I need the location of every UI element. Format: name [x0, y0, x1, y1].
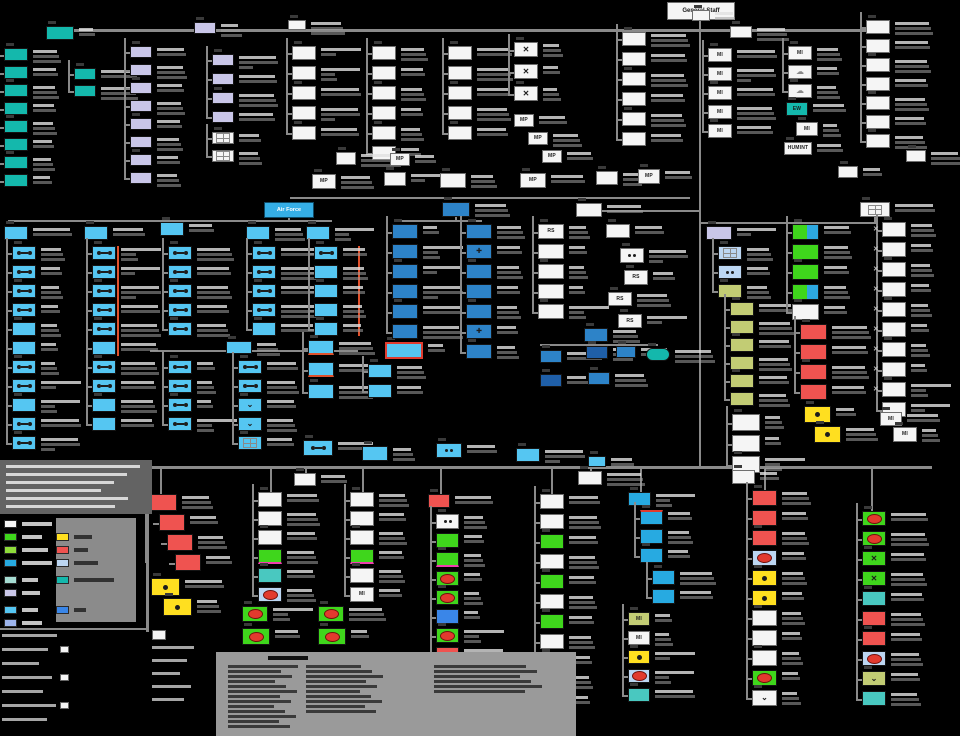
unit-label-line	[759, 340, 789, 343]
unit-label-line	[651, 79, 686, 82]
fixed-wing-icon	[97, 289, 112, 293]
unit-label-line	[185, 585, 224, 588]
echelon-tick	[308, 221, 316, 224]
unit-box	[882, 362, 906, 377]
unit-box	[540, 494, 564, 509]
echelon-tick	[868, 15, 876, 18]
fixed-wing-icon	[17, 251, 32, 255]
echelon-tick	[132, 77, 140, 80]
unit-label-line	[182, 496, 209, 499]
unit-label-line	[41, 438, 78, 441]
unit-label-line	[737, 112, 774, 115]
unit-box	[622, 132, 646, 146]
armor-oval-icon	[325, 632, 340, 642]
echelon-tick	[816, 421, 824, 424]
echelon-tick	[754, 645, 762, 648]
unit-label-line	[747, 272, 770, 275]
fixed-wing-icon	[319, 251, 334, 255]
legend-label-line	[22, 522, 52, 526]
unit-label-line	[415, 155, 434, 158]
unit-label-line	[343, 286, 363, 289]
unit-label-line	[275, 228, 301, 231]
echelon-tick	[170, 317, 178, 320]
unit-label-line	[895, 79, 926, 82]
unit-box	[540, 374, 562, 387]
unit-label-line	[817, 91, 838, 94]
unit-label-line	[41, 248, 61, 251]
unit-label-line	[680, 577, 714, 580]
echelon-tick	[786, 137, 794, 140]
unit-label-line	[911, 314, 932, 317]
unit-label-line	[737, 50, 775, 53]
cluster-spine-line	[124, 38, 126, 178]
unit-box	[308, 362, 334, 377]
footnote-text-line	[228, 690, 297, 693]
fixed-wing-icon	[97, 384, 112, 388]
unit-box	[862, 691, 886, 706]
unit-label-line	[782, 592, 802, 595]
unit-label-line	[351, 635, 369, 638]
unit-label-line	[41, 343, 56, 346]
unit-box	[538, 304, 564, 319]
unit-label-line	[379, 556, 404, 559]
unit-label-line	[782, 582, 807, 585]
echelon-tick	[374, 121, 382, 124]
unit-label-line	[895, 204, 933, 207]
unit-label-line	[33, 163, 53, 166]
unit-label-line	[33, 86, 55, 89]
artillery-dot-icon	[825, 432, 830, 437]
unit-label-line	[911, 264, 930, 267]
echelon-tick	[320, 601, 328, 604]
unit-label-line	[931, 157, 960, 160]
echelon-tick	[522, 168, 530, 171]
echelon-tick	[630, 487, 638, 490]
echelon-tick	[620, 309, 628, 312]
unit-label-line	[651, 119, 684, 122]
unit-label-line	[182, 506, 213, 509]
echelon-tick	[802, 359, 810, 362]
unit-label-line	[782, 697, 799, 700]
unit-label-line	[157, 53, 186, 56]
echelon-tick	[290, 15, 298, 18]
unit-label-line	[824, 291, 848, 294]
connector-line	[160, 469, 162, 495]
unit-label-line	[464, 564, 485, 567]
unit-box	[752, 610, 777, 626]
unit-label-line	[471, 180, 495, 183]
echelon-tick	[642, 543, 650, 546]
unit-label-line	[567, 157, 593, 160]
unit-box	[212, 92, 234, 104]
unit-label-line	[782, 502, 811, 505]
unit-label-line	[41, 405, 55, 408]
unit-label-line	[824, 296, 850, 299]
unit-box: RS	[618, 314, 642, 328]
echelon-tick	[788, 97, 796, 100]
unit-label-line	[321, 133, 359, 136]
unit-label-line	[567, 376, 586, 379]
unit-label-line	[737, 126, 771, 129]
echelon-tick	[162, 217, 170, 220]
unit-box: ☁	[788, 65, 812, 79]
unit-label-line	[551, 180, 585, 183]
unit-label-line	[157, 71, 185, 74]
unit-box	[12, 246, 36, 260]
unit-label-line	[655, 633, 669, 636]
unit-label-line	[343, 324, 361, 327]
fixed-wing-icon	[173, 384, 188, 388]
cluster-spine-line	[206, 124, 208, 156]
echelon-tick	[864, 666, 872, 669]
unit-box	[392, 284, 418, 299]
unit-label-line	[379, 570, 401, 573]
unit-label-line	[287, 513, 316, 516]
unit-label-line	[737, 69, 774, 72]
unit-box	[732, 414, 760, 431]
unit-label-line	[471, 175, 493, 178]
unit-label-line	[197, 286, 228, 289]
footnote-text-line	[228, 670, 281, 673]
unit-label-line	[846, 428, 874, 431]
unit-label-line	[817, 149, 843, 152]
unit-label-line	[668, 541, 693, 544]
unit-box	[466, 304, 492, 319]
unit-box	[792, 264, 819, 280]
unit-box: ✕	[514, 42, 538, 57]
unit-label-line	[401, 53, 426, 56]
fixed-wing-icon	[173, 289, 188, 293]
echelon-tick	[648, 343, 656, 346]
cluster-spine-line	[308, 238, 310, 329]
unit-box	[308, 340, 334, 355]
unit-label-line	[239, 75, 275, 78]
unit-label-line	[832, 351, 868, 354]
unit-label-line	[41, 267, 60, 270]
unit-label-line	[569, 231, 588, 234]
unit-box	[318, 628, 346, 645]
unit-label-line	[379, 499, 407, 502]
unit-label-line	[911, 404, 950, 407]
unit-label-line	[737, 131, 773, 134]
unit-label-line	[655, 695, 695, 698]
unit-label-line	[895, 32, 933, 35]
unit-box	[314, 265, 338, 279]
unit-label-line	[759, 399, 788, 402]
unit-box	[92, 284, 116, 298]
echelon-tick	[732, 21, 740, 24]
unit-label-line	[428, 349, 445, 352]
unit-label-line	[497, 246, 520, 249]
legend-label-line	[22, 621, 42, 625]
unit-label-line	[343, 272, 366, 275]
echelon-x-mark: ✕	[873, 266, 879, 273]
unit-label-line	[157, 102, 181, 105]
unit-code-mi: MI	[717, 129, 723, 134]
intro-text-line	[6, 505, 115, 508]
unit-label-line	[464, 540, 484, 543]
unit-label-line	[33, 158, 51, 161]
cluster-spine-line	[362, 356, 364, 391]
echelon-tick	[642, 505, 650, 508]
unit-label-line	[891, 578, 925, 581]
footnote-text-line	[434, 685, 542, 688]
footnote-text-line	[306, 680, 366, 683]
unit-label-line	[287, 589, 312, 592]
unit-box	[792, 284, 819, 300]
unit-box	[838, 166, 858, 178]
unit-label-line	[41, 443, 80, 446]
echelon-tick	[294, 81, 302, 84]
unit-label-line	[185, 580, 222, 583]
unit-box	[588, 456, 606, 467]
unit-box	[538, 284, 564, 299]
unit-box	[606, 224, 630, 238]
unit-label-line	[121, 343, 156, 346]
unit-label-line	[607, 478, 643, 481]
unit-code-mp: MP	[529, 178, 537, 183]
echelon-tick	[864, 506, 872, 509]
unit-label-line	[569, 311, 584, 314]
unit-label-line	[157, 148, 183, 151]
echelon-tick	[338, 147, 346, 150]
unit-label-line	[33, 122, 53, 125]
chevron-icon: ⌄	[761, 694, 768, 702]
unit-label-line	[569, 516, 597, 519]
unit-box	[752, 490, 777, 506]
two-dots-icon	[726, 271, 734, 274]
unit-label-line	[197, 329, 228, 332]
key-row-text-line	[2, 690, 43, 693]
unit-label-line	[273, 608, 313, 611]
unit-box	[628, 492, 651, 506]
echelon-tick	[895, 422, 903, 425]
unit-label-line	[423, 246, 463, 249]
unit-label-line	[339, 364, 370, 367]
unit-label-line	[747, 267, 768, 270]
unit-label-line	[737, 117, 776, 120]
unit-label-line	[197, 267, 229, 270]
unit-label-line	[428, 344, 443, 347]
unit-label-line	[891, 693, 917, 696]
unit-label-line	[239, 162, 262, 165]
unit-label-line	[477, 118, 511, 121]
echelon-tick	[720, 279, 728, 282]
unit-label-line	[379, 513, 404, 516]
unit-label-line	[257, 343, 276, 346]
echelon-tick	[590, 451, 598, 454]
echelon-x-mark: ✕	[873, 286, 879, 293]
unit-label-line	[817, 72, 839, 75]
unit-label-line	[497, 351, 517, 354]
unit-label-line	[121, 305, 158, 308]
unit-label-line	[397, 386, 421, 389]
unit-code-humint: HUMINT	[788, 146, 809, 151]
unit-box: MP	[542, 150, 562, 163]
echelon-tick	[296, 468, 304, 471]
unit-label-line	[613, 335, 638, 338]
armor-oval-icon	[263, 590, 278, 600]
unit-label-line	[569, 266, 584, 269]
unit-label-line	[41, 372, 59, 375]
echelon-tick	[622, 243, 630, 246]
unit-label-line	[321, 480, 347, 483]
unit-label-line	[497, 346, 515, 349]
cluster-spine-line	[232, 352, 234, 443]
unit-label-line	[33, 109, 56, 112]
unit-label-line	[343, 267, 364, 270]
echelon-tick	[540, 259, 548, 262]
unit-label-line	[637, 304, 671, 307]
echelon-tick	[14, 279, 22, 282]
unit-label-line	[41, 381, 81, 384]
unit-label-line	[339, 342, 371, 345]
unit-label-line	[257, 353, 280, 356]
unit-label-line	[121, 258, 138, 261]
unit-box	[882, 302, 906, 317]
unit-label-line	[680, 582, 716, 585]
unit-box	[130, 82, 152, 94]
connector-line	[290, 197, 690, 199]
unit-label-line	[737, 228, 776, 231]
legend-swatch	[4, 589, 17, 597]
unit-box	[466, 284, 492, 299]
unit-box	[212, 54, 234, 66]
unit-label-line	[190, 516, 216, 519]
unit-label-line	[239, 66, 253, 69]
unit-label-line	[497, 251, 522, 254]
unit-label-line	[401, 58, 428, 61]
cloud-icon: ☁	[796, 68, 804, 76]
unit-label-line	[832, 391, 866, 394]
unit-label-line	[197, 405, 213, 408]
echelon-tick	[320, 623, 328, 626]
unit-label-line	[782, 617, 803, 620]
unit-label-line	[423, 226, 437, 229]
unit-label-line	[379, 580, 405, 583]
intro-text-line	[6, 497, 128, 500]
unit-box	[800, 384, 827, 400]
unit-label-line	[891, 673, 918, 676]
unit-label-line	[569, 636, 591, 639]
unit-label-line	[569, 236, 590, 239]
unit-box	[882, 242, 906, 257]
unit-label-line	[267, 419, 293, 422]
unit-label-line	[569, 271, 586, 274]
unit-label-line	[464, 592, 479, 595]
legend-label-line	[22, 561, 52, 565]
unit-label-line	[653, 277, 675, 280]
unit-label-line	[891, 618, 923, 621]
unit-label-line	[321, 73, 335, 76]
unit-label-line	[157, 112, 185, 115]
unit-code-rs: RS	[616, 297, 623, 302]
unit-code-mi: MI	[717, 110, 723, 115]
unit-label-line	[891, 678, 920, 681]
unit-box	[336, 152, 356, 165]
unit-label-line	[615, 384, 648, 387]
unit-label-line	[737, 88, 773, 91]
unit-box	[538, 244, 564, 259]
infantry-x-icon: ✕	[871, 555, 878, 563]
unit-label-line	[464, 578, 482, 581]
unit-label-line	[197, 324, 226, 327]
unit-box	[292, 66, 316, 80]
unit-label-line	[824, 306, 845, 309]
echelon-tick	[884, 217, 892, 220]
key-row-text-line	[152, 646, 194, 649]
unit-label-line	[41, 367, 57, 370]
unit-label-line	[287, 599, 316, 602]
unit-label-line	[911, 329, 929, 332]
unit-box	[540, 574, 564, 589]
unit-label-line	[782, 537, 807, 540]
footnote-text-line	[306, 675, 383, 678]
unit-label-line	[655, 619, 672, 622]
unit-label-line	[891, 698, 919, 701]
unit-label-line	[757, 28, 785, 31]
unit-box	[212, 150, 234, 162]
echelon-tick	[630, 683, 638, 686]
unit-label-line	[759, 345, 791, 348]
unit-box	[292, 106, 316, 120]
footnote-text-line	[434, 690, 525, 693]
unit-label-line	[121, 400, 153, 403]
unit-label-line	[765, 426, 784, 429]
unit-box	[12, 341, 36, 355]
unit-label-line	[197, 310, 229, 313]
echelon-tick	[132, 113, 140, 116]
unit-label-line	[401, 48, 424, 51]
cluster-spine-line	[6, 238, 8, 443]
unit-label-line	[665, 171, 690, 174]
two-dots-icon	[628, 254, 636, 257]
echelon-tick	[394, 219, 402, 222]
unit-label-line	[41, 448, 55, 451]
unit-label-line	[239, 152, 258, 155]
unit-box	[12, 379, 36, 393]
echelon-tick	[6, 221, 14, 224]
unit-label-line	[675, 360, 715, 363]
unit-label-line	[668, 550, 688, 553]
unit-label-line	[41, 419, 79, 422]
unit-box	[242, 606, 268, 622]
echelon-tick	[624, 67, 632, 70]
fixed-wing-icon	[173, 403, 188, 407]
unit-box	[866, 58, 890, 72]
echelon-tick	[732, 297, 740, 300]
unit-label-line	[782, 512, 806, 515]
unit-box	[258, 511, 282, 526]
footnote-text-line	[228, 710, 285, 713]
unit-label-line	[343, 291, 365, 294]
echelon-tick	[364, 441, 372, 444]
unit-label-line	[287, 523, 320, 526]
unit-label-line	[157, 161, 180, 164]
unit-box	[882, 262, 906, 277]
unit-box	[620, 248, 644, 263]
unit-box	[92, 341, 116, 355]
echelon-tick	[240, 355, 248, 358]
key-row-marker	[60, 702, 69, 709]
unit-box	[436, 628, 459, 643]
unit-label-line	[423, 311, 462, 314]
unit-label-line	[197, 381, 212, 384]
unit-label-line	[477, 108, 507, 111]
echelon-tick	[240, 393, 248, 396]
unit-box	[718, 284, 742, 298]
unit-label-line	[607, 205, 641, 208]
